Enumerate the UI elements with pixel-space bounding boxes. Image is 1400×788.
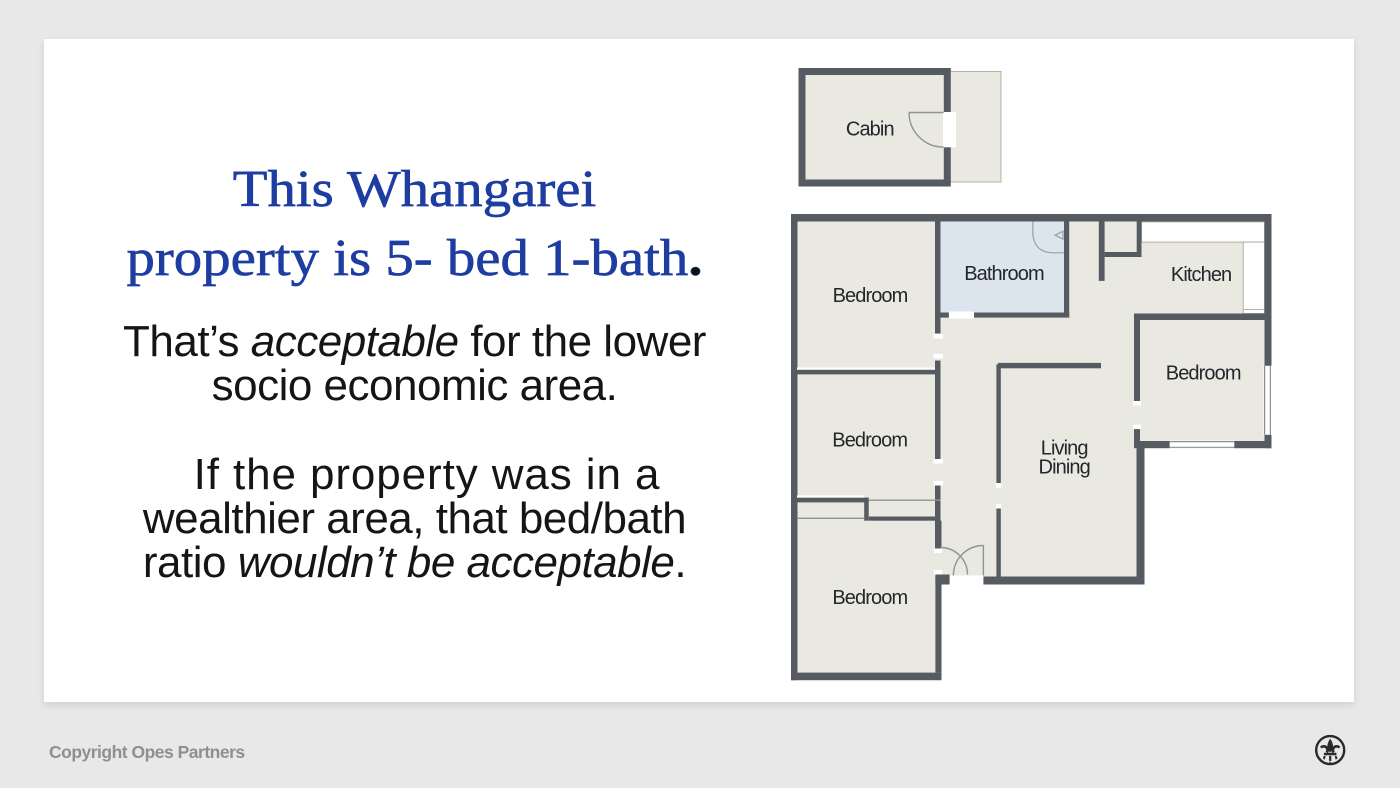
svg-text:Dining: Dining bbox=[1039, 456, 1090, 478]
svg-text:Kitchen: Kitchen bbox=[1171, 264, 1231, 286]
svg-text:Bedroom: Bedroom bbox=[833, 285, 908, 307]
svg-text:Bedroom: Bedroom bbox=[1166, 363, 1241, 385]
svg-text:Bedroom: Bedroom bbox=[832, 587, 907, 609]
svg-text:Bedroom: Bedroom bbox=[832, 430, 907, 452]
svg-text:Bathroom: Bathroom bbox=[964, 263, 1044, 285]
svg-text:Cabin: Cabin bbox=[846, 119, 894, 141]
